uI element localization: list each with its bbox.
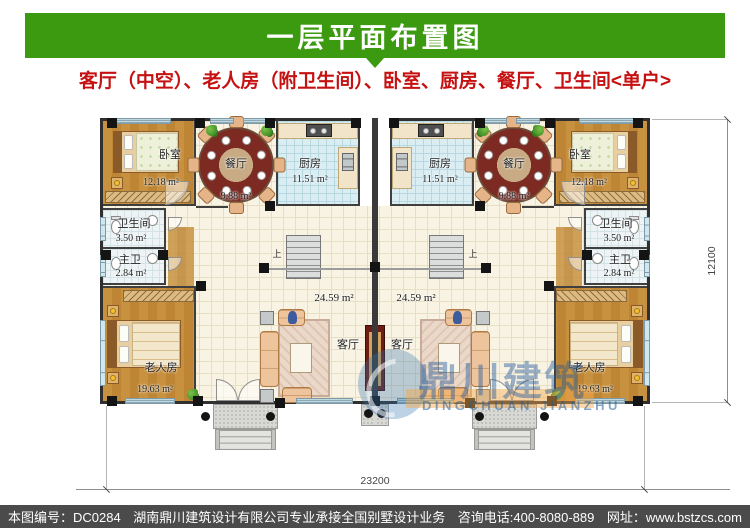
dining-chair: [229, 202, 244, 214]
column-marker: [370, 396, 380, 406]
floor-plan: 卧室 12.18 m² 餐厅 9.88 m²: [100, 118, 650, 404]
window: [579, 118, 637, 124]
room-bath: 卫生间 3.50 m²: [103, 208, 166, 249]
room-label-kitchen: 厨房: [286, 159, 334, 170]
column-marker: [275, 398, 285, 408]
column-marker: [351, 118, 361, 128]
end-table: [476, 311, 490, 325]
column-marker: [544, 281, 554, 291]
step-rail: [271, 429, 276, 450]
bed-headboard: [108, 321, 117, 367]
wardrobe: [556, 290, 627, 302]
room-elder: 老人房 19.63 m²: [554, 286, 647, 401]
lamp: [630, 180, 636, 186]
footer-item-drawing-no: 本图编号：DC0284: [8, 507, 121, 526]
room-area-elder: 19.63 m²: [123, 384, 187, 395]
lamp: [634, 375, 640, 381]
porch-column: [364, 409, 373, 418]
bed: [107, 320, 181, 368]
stairs-up-label: 上: [271, 249, 283, 260]
column-marker: [195, 118, 205, 128]
porch-column: [266, 412, 275, 421]
room-master-bath: 主卫 2.84 m²: [584, 249, 647, 285]
blanket: [132, 322, 180, 366]
stairs: [429, 235, 464, 279]
stove: [306, 124, 332, 137]
room-area-dining: 9.88 m²: [208, 191, 264, 202]
blanket: [570, 322, 618, 366]
porch-column: [540, 412, 549, 421]
room-label-master-bath: 主卫: [595, 255, 645, 266]
room-label-elder: 老人房: [561, 363, 617, 374]
sink: [396, 153, 408, 171]
room-label-living: 客厅: [330, 340, 366, 351]
room-area-living: 24.59 m²: [383, 293, 449, 304]
person-figure: [288, 311, 297, 324]
column-marker: [265, 118, 275, 128]
dim-extension: [644, 406, 645, 490]
sofa: [260, 331, 279, 387]
lamp: [110, 308, 116, 314]
footer-item-phone: 咨询电话:400-8080-889: [458, 507, 595, 526]
room-bath: 卫生间 3.50 m²: [584, 208, 647, 249]
pillow: [621, 325, 631, 342]
footer-bar: 本图编号：DC0284 湖南鼎川建筑设计有限公司专业承接全国别墅设计业务 咨询电…: [0, 505, 750, 528]
column-marker: [475, 118, 485, 128]
bed-headboard: [114, 132, 122, 172]
sink: [342, 153, 354, 171]
window: [100, 320, 106, 386]
bed-headboard: [628, 132, 636, 172]
wall: [196, 206, 228, 208]
column-marker: [193, 396, 203, 406]
column-marker: [633, 118, 643, 128]
window: [644, 320, 650, 386]
room-label-elder: 老人房: [133, 363, 189, 374]
plant-icon: [533, 125, 544, 136]
room-list-subtitle: 客厅（中空）、老人房（附卫生间）、卧室、厨房、餐厅、卫生间<单户>: [0, 66, 750, 93]
window: [397, 398, 454, 404]
window: [296, 398, 353, 404]
plant-icon: [206, 125, 217, 136]
bed: [569, 320, 643, 368]
room-label-living: 客厅: [384, 340, 420, 351]
column-marker: [481, 263, 491, 273]
unit-left: 卧室 12.18 m² 餐厅 9.88 m²: [103, 121, 375, 401]
stairs: [286, 235, 321, 279]
room-area-master-bath: 2.84 m²: [591, 268, 647, 279]
column-marker: [196, 281, 206, 291]
entrance-door-arc: [490, 379, 512, 401]
column-marker: [582, 250, 592, 260]
window: [125, 398, 175, 404]
dim-width-value: 23200: [343, 475, 407, 487]
porch-steps: [478, 429, 531, 450]
column-marker: [265, 201, 275, 211]
room-area-living: 24.59 m²: [301, 293, 367, 304]
column-marker: [259, 263, 269, 273]
dim-line-width: [76, 489, 730, 490]
column-marker: [547, 396, 557, 406]
lamp: [634, 308, 640, 314]
room-area-bath: 3.50 m²: [103, 233, 159, 244]
pillow: [119, 325, 129, 342]
footer-item-company: 湖南鼎川建筑设计有限公司专业承接全国别墅设计业务: [133, 507, 445, 526]
footer-item-website: 网址：www.bstzcs.com: [607, 507, 742, 526]
room-label-bath: 卫生间: [587, 219, 645, 230]
dining-chair: [507, 202, 522, 214]
pillow: [119, 346, 129, 363]
dining-chair: [273, 158, 285, 173]
unit-right: 卧室 12.18 m² 餐厅 9.88 m²: [375, 121, 647, 401]
step-rail: [474, 429, 479, 450]
burner-icon: [321, 128, 327, 134]
room-master-bath: 主卫 2.84 m²: [103, 249, 166, 285]
dining-chair: [465, 158, 477, 173]
column-marker: [370, 262, 380, 272]
coffee-table: [290, 343, 312, 373]
wall: [522, 206, 554, 208]
lamp: [110, 375, 116, 381]
porch-column: [475, 412, 484, 421]
room-label-bedroom: 卧室: [147, 150, 193, 161]
column-marker: [465, 398, 475, 408]
room-area-bath: 3.50 m²: [591, 233, 647, 244]
dim-height-value: 12100: [706, 236, 718, 286]
column-marker: [389, 118, 399, 128]
page: 一层平面布置图 客厅（中空）、老人房（附卫生间）、卧室、厨房、餐厅、卫生间<单户…: [0, 0, 750, 528]
pillow: [617, 135, 626, 150]
column-marker: [107, 118, 117, 128]
dim-extension: [652, 119, 728, 120]
stairs-up-label: 上: [467, 249, 479, 260]
porch-column: [201, 412, 210, 421]
end-table: [260, 311, 274, 325]
step-rail: [215, 429, 220, 450]
window: [575, 398, 625, 404]
void-beam: [375, 268, 489, 270]
porch-column: [377, 409, 386, 418]
porch-steps: [219, 429, 272, 450]
bed-headboard: [633, 321, 642, 367]
burner-icon: [434, 128, 440, 134]
room-area-bedroom: 12.18 m²: [133, 177, 189, 188]
wardrobe: [123, 290, 194, 302]
room-label-kitchen: 厨房: [416, 159, 464, 170]
column-marker: [545, 118, 555, 128]
pillow: [621, 346, 631, 363]
entrance-door-arc: [238, 379, 260, 401]
room-kitchen: 厨房 11.51 m²: [276, 121, 360, 206]
coffee-table: [438, 343, 460, 373]
room-label-master-bath: 主卫: [105, 255, 155, 266]
party-wall: [372, 118, 378, 404]
window: [113, 118, 171, 124]
sofa-set: [260, 309, 330, 403]
dim-line-height: [727, 119, 728, 403]
room-label-dining: 餐厅: [218, 159, 254, 170]
room-label-bedroom: 卧室: [557, 150, 603, 161]
sofa-set: [420, 309, 490, 403]
dim-extension: [652, 402, 728, 403]
page-title: 一层平面布置图: [267, 16, 484, 55]
pillow: [124, 135, 133, 150]
column-marker: [475, 201, 485, 211]
room-elder: 老人房 19.63 m²: [103, 286, 196, 401]
dim-extension: [106, 406, 107, 490]
burner-icon: [423, 128, 429, 134]
end-table: [260, 389, 274, 403]
page-header: 一层平面布置图: [25, 13, 725, 58]
window: [516, 118, 540, 124]
room-label-dining: 餐厅: [496, 159, 532, 170]
lamp: [114, 180, 120, 186]
window: [210, 118, 234, 124]
column-marker: [158, 250, 168, 260]
room-area-bedroom: 12.18 m²: [561, 177, 617, 188]
void-beam: [261, 268, 375, 270]
room-area-elder: 19.63 m²: [563, 384, 627, 395]
pillow: [124, 154, 133, 169]
step-rail: [530, 429, 535, 450]
room-kitchen: 厨房 11.51 m²: [390, 121, 474, 206]
room-area-kitchen: 11.51 m²: [410, 174, 470, 185]
room-area-kitchen: 11.51 m²: [280, 174, 340, 185]
room-area-master-bath: 2.84 m²: [103, 268, 159, 279]
room-area-dining: 9.88 m²: [486, 191, 542, 202]
pillow: [617, 154, 626, 169]
person-figure: [453, 311, 462, 324]
burner-icon: [310, 128, 316, 134]
entrance-door-arc: [512, 379, 534, 401]
column-marker: [633, 396, 643, 406]
end-table: [476, 389, 490, 403]
column-marker: [107, 396, 117, 406]
entrance-door-arc: [216, 379, 238, 401]
stove: [418, 124, 444, 137]
room-label-bath: 卫生间: [105, 219, 163, 230]
sofa: [471, 331, 490, 387]
